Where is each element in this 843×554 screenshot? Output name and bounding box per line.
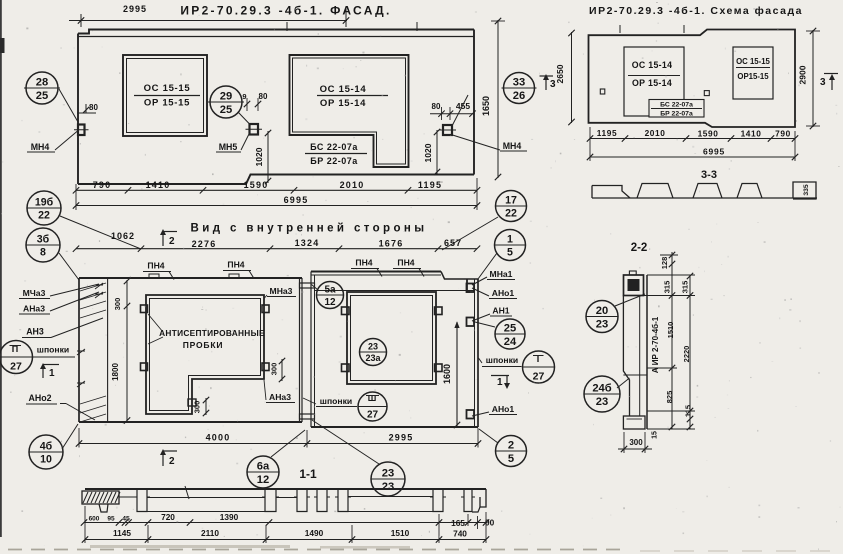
svg-text:1410: 1410 (741, 129, 762, 139)
svg-text:657: 657 (444, 238, 462, 248)
svg-text:2: 2 (169, 456, 175, 467)
svg-text:ОС 15-14: ОС 15-14 (320, 84, 367, 95)
svg-text:МНа1: МНа1 (490, 269, 513, 279)
svg-text:8: 8 (40, 247, 46, 259)
svg-text:2010: 2010 (645, 128, 666, 138)
svg-text:1062: 1062 (111, 231, 135, 241)
svg-text:АНо1: АНо1 (492, 404, 515, 414)
svg-text:1510: 1510 (391, 528, 410, 538)
svg-text:27: 27 (367, 410, 379, 421)
svg-text:12: 12 (324, 297, 336, 308)
svg-text:1590: 1590 (244, 180, 269, 190)
svg-text:БС 22-07а: БС 22-07а (660, 102, 693, 109)
svg-text:2995: 2995 (123, 4, 147, 14)
svg-text:1650: 1650 (481, 96, 491, 116)
svg-text:ПН4: ПН4 (355, 258, 372, 268)
svg-text:1390: 1390 (220, 512, 239, 522)
svg-text:165: 165 (451, 518, 465, 528)
svg-text:2276: 2276 (192, 239, 217, 249)
svg-text:2-2: 2-2 (631, 242, 648, 254)
svg-text:300: 300 (113, 298, 122, 311)
svg-text:АНа3: АНа3 (23, 304, 45, 314)
svg-text:95: 95 (107, 516, 115, 523)
svg-text:15: 15 (652, 431, 659, 439)
svg-text:6995: 6995 (703, 147, 725, 157)
svg-text:128: 128 (660, 257, 669, 270)
svg-text:АНа3: АНа3 (269, 392, 291, 402)
svg-text:3: 3 (820, 77, 826, 88)
svg-text:4000: 4000 (206, 433, 231, 443)
svg-text:300: 300 (629, 438, 643, 447)
svg-text:шпонки: шпонки (37, 345, 69, 355)
svg-text:455: 455 (456, 101, 470, 111)
svg-text:ОР 15-14: ОР 15-14 (632, 78, 672, 88)
svg-text:МН4: МН4 (31, 142, 50, 152)
svg-text:1410: 1410 (146, 180, 171, 190)
svg-text:790: 790 (93, 180, 112, 190)
svg-text:5: 5 (508, 453, 514, 465)
svg-text:1676: 1676 (379, 239, 404, 249)
svg-text:Вид с внутренней стороны: Вид с внутренней стороны (191, 223, 428, 235)
svg-text:740: 740 (453, 529, 467, 539)
svg-text:1490: 1490 (305, 528, 324, 538)
svg-text:1: 1 (49, 368, 55, 379)
svg-text:шпонки: шпонки (320, 396, 352, 406)
svg-text:600: 600 (89, 516, 100, 523)
svg-text:29: 29 (220, 91, 232, 103)
svg-text:БР 22-07а: БР 22-07а (660, 111, 693, 118)
svg-text:27: 27 (533, 371, 545, 383)
svg-text:23: 23 (368, 342, 378, 352)
svg-text:1020: 1020 (423, 143, 433, 162)
svg-text:3б: 3б (37, 234, 50, 246)
svg-text:9: 9 (242, 92, 246, 101)
svg-text:300: 300 (193, 401, 202, 414)
svg-text:80: 80 (89, 103, 98, 112)
svg-text:4б: 4б (40, 441, 53, 453)
svg-text:20: 20 (596, 305, 608, 317)
svg-text:1020: 1020 (254, 147, 264, 166)
svg-text:ОР 15-14: ОР 15-14 (320, 98, 366, 109)
svg-text:23а: 23а (365, 353, 381, 363)
svg-text:825: 825 (665, 391, 674, 404)
svg-text:ОР 15-15: ОР 15-15 (144, 98, 190, 109)
svg-text:ПРОБКИ: ПРОБКИ (183, 340, 224, 350)
svg-text:23: 23 (596, 319, 608, 331)
svg-text:2995: 2995 (389, 433, 414, 443)
svg-text:23: 23 (596, 396, 608, 408)
svg-text:12: 12 (257, 474, 269, 486)
svg-text:25: 25 (504, 323, 516, 335)
svg-text:22: 22 (505, 208, 517, 220)
svg-text:ОС 15-15: ОС 15-15 (736, 57, 770, 66)
svg-text:МЧа3: МЧа3 (23, 288, 46, 298)
svg-text:ПН4: ПН4 (397, 258, 414, 268)
svg-text:2900: 2900 (798, 65, 808, 84)
svg-text:5: 5 (507, 247, 513, 259)
svg-text:315: 315 (663, 281, 672, 294)
svg-text:25: 25 (36, 90, 48, 102)
svg-text:АН3: АН3 (26, 327, 44, 337)
svg-text:45: 45 (122, 516, 130, 523)
svg-text:3-3: 3-3 (701, 169, 717, 181)
svg-text:80: 80 (259, 92, 268, 101)
svg-text:ОР15-15: ОР15-15 (737, 72, 769, 81)
svg-text:24: 24 (504, 336, 517, 348)
svg-text:АНо2: АНо2 (29, 393, 52, 403)
svg-text:ПН4: ПН4 (227, 260, 244, 270)
svg-text:2650: 2650 (555, 64, 565, 83)
svg-text:2220: 2220 (682, 346, 691, 363)
svg-text:БС 22-07а: БС 22-07а (310, 142, 358, 152)
svg-text:МНа3: МНа3 (270, 286, 293, 296)
svg-text:А ИР 2-70-4б-1: А ИР 2-70-4б-1 (651, 316, 660, 373)
svg-text:1195: 1195 (418, 180, 442, 190)
svg-text:720: 720 (161, 512, 175, 522)
svg-text:ОС 15-15: ОС 15-15 (144, 83, 191, 94)
svg-text:АНТИСЕПТИРОВАННЫЕ: АНТИСЕПТИРОВАННЫЕ (159, 328, 265, 338)
svg-text:МН4: МН4 (503, 141, 522, 151)
svg-text:1510: 1510 (666, 322, 675, 339)
svg-text:23: 23 (382, 481, 394, 493)
svg-text:17: 17 (505, 195, 517, 207)
svg-text:АНо1: АНо1 (492, 288, 515, 298)
svg-text:115: 115 (684, 405, 693, 417)
svg-text:2010: 2010 (340, 180, 365, 190)
svg-text:6а: 6а (257, 461, 270, 473)
svg-text:ИР2-70.29.3 -4б-1. ФАСАД.: ИР2-70.29.3 -4б-1. ФАСАД. (180, 4, 391, 18)
svg-text:1195: 1195 (597, 128, 617, 138)
svg-text:1145: 1145 (113, 528, 131, 538)
svg-text:24б: 24б (592, 383, 611, 395)
svg-text:1-1: 1-1 (299, 467, 317, 481)
svg-text:1800: 1800 (111, 363, 120, 381)
svg-text:шпонки: шпонки (486, 355, 518, 365)
svg-text:26: 26 (513, 90, 525, 102)
svg-text:5а: 5а (324, 285, 336, 296)
svg-text:28: 28 (36, 77, 48, 89)
svg-text:22: 22 (38, 210, 50, 222)
svg-text:6995: 6995 (284, 195, 309, 205)
svg-text:1: 1 (497, 377, 503, 388)
svg-text:27: 27 (10, 361, 22, 373)
svg-text:2: 2 (508, 440, 514, 452)
svg-text:300: 300 (270, 363, 279, 376)
svg-text:80: 80 (432, 102, 441, 111)
svg-text:790: 790 (775, 129, 791, 139)
svg-text:ИР2-70.29.3 -4б-1. Схема фасад: ИР2-70.29.3 -4б-1. Схема фасада (589, 5, 803, 17)
svg-text:2110: 2110 (201, 528, 219, 538)
svg-text:1590: 1590 (698, 129, 719, 139)
svg-text:25: 25 (220, 104, 232, 116)
svg-text:2: 2 (169, 236, 175, 247)
svg-text:19б: 19б (35, 197, 54, 209)
svg-text:Ш: Ш (368, 393, 377, 403)
svg-text:1: 1 (507, 234, 513, 246)
svg-text:1324: 1324 (295, 238, 320, 248)
svg-text:1600: 1600 (442, 364, 452, 384)
svg-text:АН1: АН1 (492, 306, 509, 316)
svg-text:10: 10 (40, 454, 52, 466)
svg-text:БР 22-07а: БР 22-07а (310, 156, 358, 166)
svg-text:33: 33 (513, 77, 525, 89)
svg-text:ОС 15-14: ОС 15-14 (632, 60, 673, 70)
svg-text:ПН4: ПН4 (147, 261, 164, 271)
svg-text:23: 23 (382, 468, 394, 480)
svg-text:МН5: МН5 (219, 142, 238, 152)
